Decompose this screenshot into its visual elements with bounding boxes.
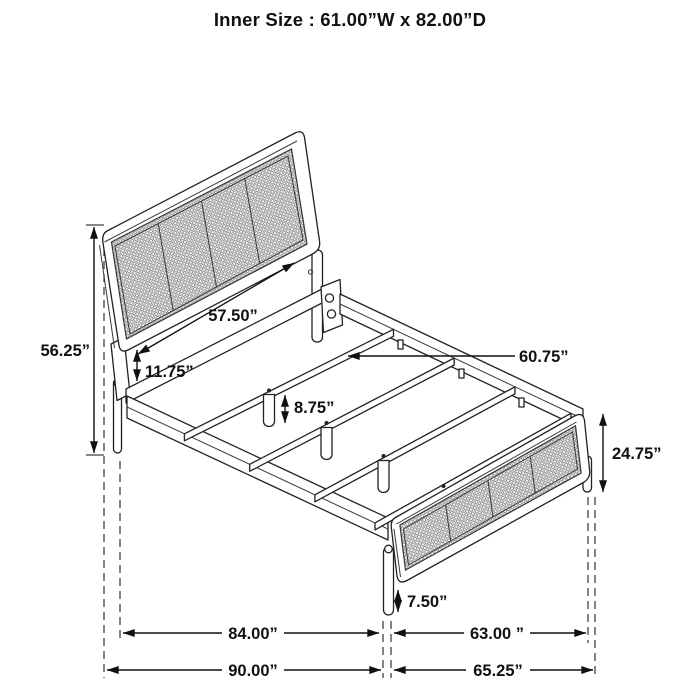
- slat-clip: [459, 369, 464, 378]
- footboard-front-leg: [384, 547, 394, 615]
- dim-footboard-inner-width: 63.00 ”: [394, 625, 586, 643]
- dim-label-rail-height: 11.75”: [145, 363, 194, 381]
- bed-dimension-diagram: Inner Size : 61.00”W x 82.00”D: [0, 0, 700, 700]
- dim-label-slat-length: 60.75”: [519, 348, 569, 366]
- slat-leg-2: [321, 428, 332, 460]
- bed-drawing: [100, 132, 596, 678]
- slat-clip: [398, 340, 403, 349]
- dim-label-headboard-height: 56.25”: [40, 342, 90, 360]
- dim-rail-height: 11.75”: [137, 350, 194, 381]
- dim-outer-length: 90.00”: [107, 662, 381, 680]
- dim-label-outer-length: 90.00”: [228, 662, 278, 680]
- dim-label-footboard-height: 24.75”: [612, 445, 662, 463]
- rail-bracket: [321, 280, 343, 333]
- dim-label-footboard-outer-width: 65.25”: [473, 662, 523, 680]
- dim-label-headboard-inner-width: 57.50”: [208, 307, 258, 325]
- dim-inner-length: 84.00”: [123, 625, 379, 643]
- slat-leg-3: [378, 461, 389, 493]
- dim-label-footboard-leg-height: 7.50”: [407, 593, 447, 611]
- slat-clip: [519, 398, 524, 407]
- bracket-screw: [325, 294, 333, 302]
- bracket-screw: [327, 310, 335, 318]
- slat-2: [250, 358, 455, 471]
- dim-headboard-height: 56.25”: [40, 225, 104, 455]
- dim-label-footboard-inner-width: 63.00 ”: [470, 625, 524, 643]
- dim-footboard-height: 24.75”: [603, 414, 662, 492]
- dim-slat-leg-height: 8.75”: [285, 395, 334, 423]
- slat-leg-1: [264, 395, 275, 427]
- dim-footboard-outer-width: 65.25”: [394, 662, 593, 680]
- dim-label-inner-length: 84.00”: [228, 625, 278, 643]
- diagram-canvas: Inner Size : 61.00”W x 82.00”D: [0, 0, 700, 700]
- dim-label-slat-leg-height: 8.75”: [294, 399, 334, 417]
- dim-footboard-leg-height: 7.50”: [398, 590, 447, 612]
- page-title: Inner Size : 61.00”W x 82.00”D: [214, 9, 486, 30]
